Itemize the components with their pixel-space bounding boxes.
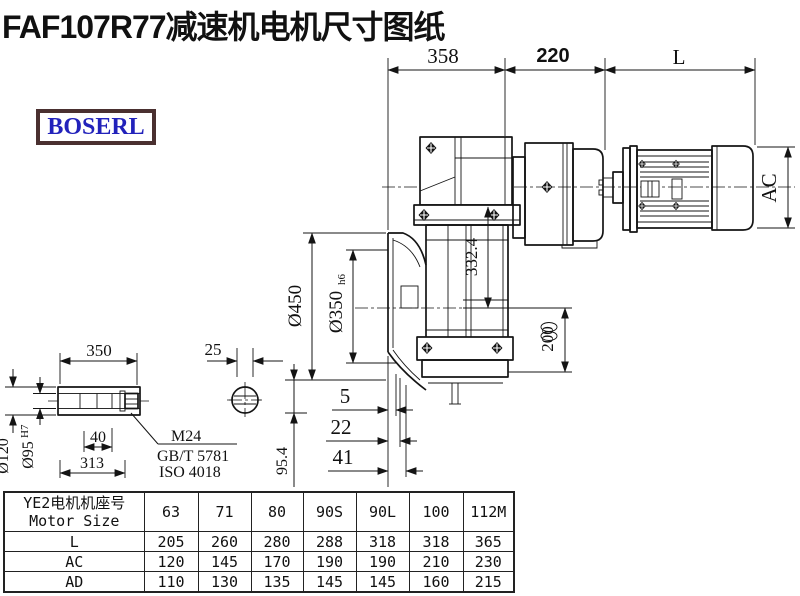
cell-AD-100: 160 — [409, 572, 463, 593]
row-label-AC: AC — [4, 552, 144, 572]
col-80: 80 — [251, 492, 303, 532]
output-flange-bell — [388, 233, 426, 390]
note-gbt-5781: GB/T 5781 — [157, 448, 229, 465]
table-row-AD: AD 110 130 135 145 145 160 215 — [4, 572, 514, 593]
cell-AC-80: 170 — [251, 552, 303, 572]
cell-L-80: 280 — [251, 532, 303, 552]
dim-332-label: 332.4 — [462, 237, 481, 276]
cell-AC-112M: 230 — [463, 552, 514, 572]
cell-L-90S: 288 — [303, 532, 356, 552]
col-100: 100 — [409, 492, 463, 532]
cell-L-90L: 318 — [356, 532, 409, 552]
table-header-motor-size: YE2电机机座号 Motor Size — [4, 492, 144, 532]
cell-AD-90S: 145 — [303, 572, 356, 593]
dim-AC-label: AC — [757, 173, 781, 202]
cell-L-100: 318 — [409, 532, 463, 552]
row-label-AD: AD — [4, 572, 144, 593]
cell-AD-112M: 215 — [463, 572, 514, 593]
dim-200-label: 200 — [538, 326, 557, 352]
dim-foot-height: 200 — [508, 308, 572, 372]
cell-AC-100: 210 — [409, 552, 463, 572]
cell-L-112M: 365 — [463, 532, 514, 552]
col-63: 63 — [144, 492, 198, 532]
cell-AC-90S: 190 — [303, 552, 356, 572]
dim-spigot-label: Ø350 — [326, 291, 347, 333]
dim-motor-height: AC — [757, 147, 795, 228]
drawing-sheet: FAF107R77减速机电机尺寸图纸 BOSERL — [0, 0, 800, 596]
motor — [603, 146, 753, 232]
table-header-en: Motor Size — [5, 512, 144, 530]
row-label-L: L — [4, 532, 144, 552]
dim-spigot-diameter: Ø350 h6 — [326, 250, 397, 363]
cell-AD-80: 135 — [251, 572, 303, 593]
shaft-cross-section: 25 — [205, 340, 284, 414]
note-m24: M24 — [171, 428, 201, 445]
cell-L-71: 260 — [198, 532, 251, 552]
cell-AD-71: 130 — [198, 572, 251, 593]
col-90L: 90L — [356, 492, 409, 532]
table-header-cn: YE2电机机座号 — [5, 494, 144, 512]
dim-120-label: Ø120 — [0, 438, 12, 474]
dim-spigot-tolerance: h6 — [336, 274, 348, 286]
col-112M: 112M — [463, 492, 514, 532]
dim-5-label: 5 — [340, 384, 351, 408]
dim-22-label: 22 — [331, 415, 352, 439]
dim-offset-95-4: 95.4 — [274, 364, 307, 487]
col-71: 71 — [198, 492, 251, 532]
dim-flange-od-label: Ø450 — [285, 285, 306, 327]
second-stage-housing — [513, 143, 603, 341]
table-row-AC: AC 120 145 170 190 190 210 230 — [4, 552, 514, 572]
dim-313-label: 313 — [80, 455, 104, 472]
dim-41-label: 41 — [333, 445, 354, 469]
dim-25-label: 25 — [205, 340, 222, 359]
dim-350-label: 350 — [86, 341, 112, 360]
cell-AC-71: 145 — [198, 552, 251, 572]
dim-L-label: L — [673, 45, 686, 69]
cell-AD-90L: 145 — [356, 572, 409, 593]
cell-L-63: 205 — [144, 532, 198, 552]
hollow-shaft-detail: 350 Ø120 Ø95 H7 40 — [0, 341, 237, 481]
table-row-L: L 205 260 280 288 318 318 365 — [4, 532, 514, 552]
dim-95-label: Ø95 — [20, 441, 37, 469]
cell-AC-63: 120 — [144, 552, 198, 572]
dim-40-label: 40 — [90, 429, 106, 446]
dim-95-tolerance: H7 — [19, 424, 31, 438]
note-iso-4018: ISO 4018 — [159, 464, 221, 481]
dim-95-4-label: 95.4 — [274, 447, 291, 475]
cell-AD-63: 110 — [144, 572, 198, 593]
dim-220-label: 220 — [536, 45, 569, 67]
col-90S: 90S — [303, 492, 356, 532]
motor-size-table: YE2电机机座号 Motor Size 63 71 80 90S 90L 100… — [3, 491, 515, 593]
dim-358-label: 358 — [427, 44, 459, 68]
cell-AC-90L: 190 — [356, 552, 409, 572]
